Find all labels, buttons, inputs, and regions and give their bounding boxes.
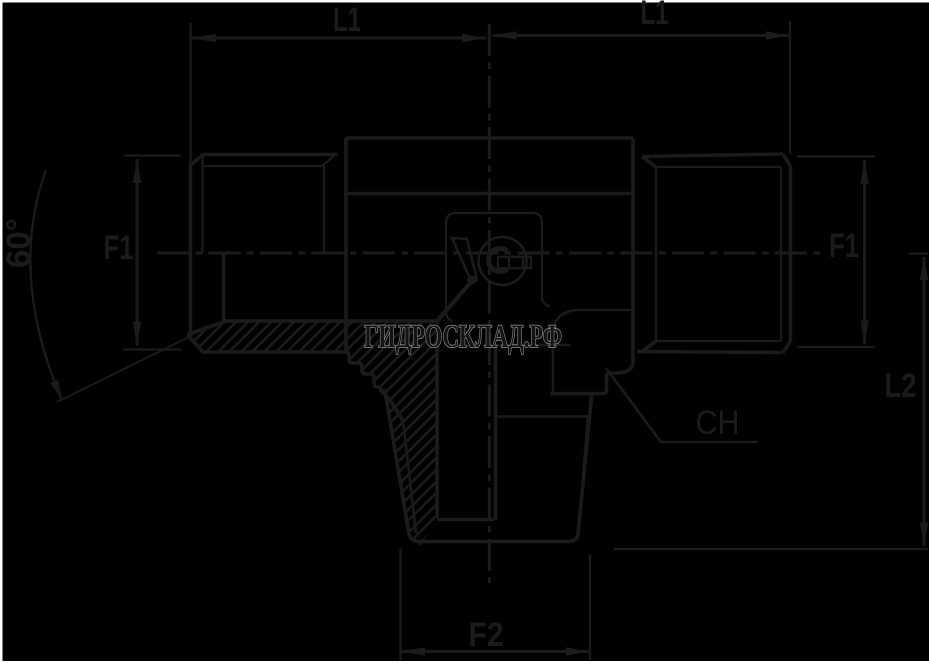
svg-text:F1: F1: [829, 227, 859, 265]
svg-text:60°: 60°: [0, 218, 38, 268]
svg-text:L2: L2: [885, 367, 917, 405]
svg-text:L1: L1: [333, 1, 361, 39]
svg-text:CH: CH: [696, 404, 740, 442]
svg-text:F2: F2: [469, 616, 504, 654]
svg-text:ГИДРОСКЛАД.РФ: ГИДРОСКЛАД.РФ: [364, 319, 562, 355]
svg-text:F1: F1: [104, 229, 134, 267]
svg-text:L1: L1: [641, 0, 669, 32]
